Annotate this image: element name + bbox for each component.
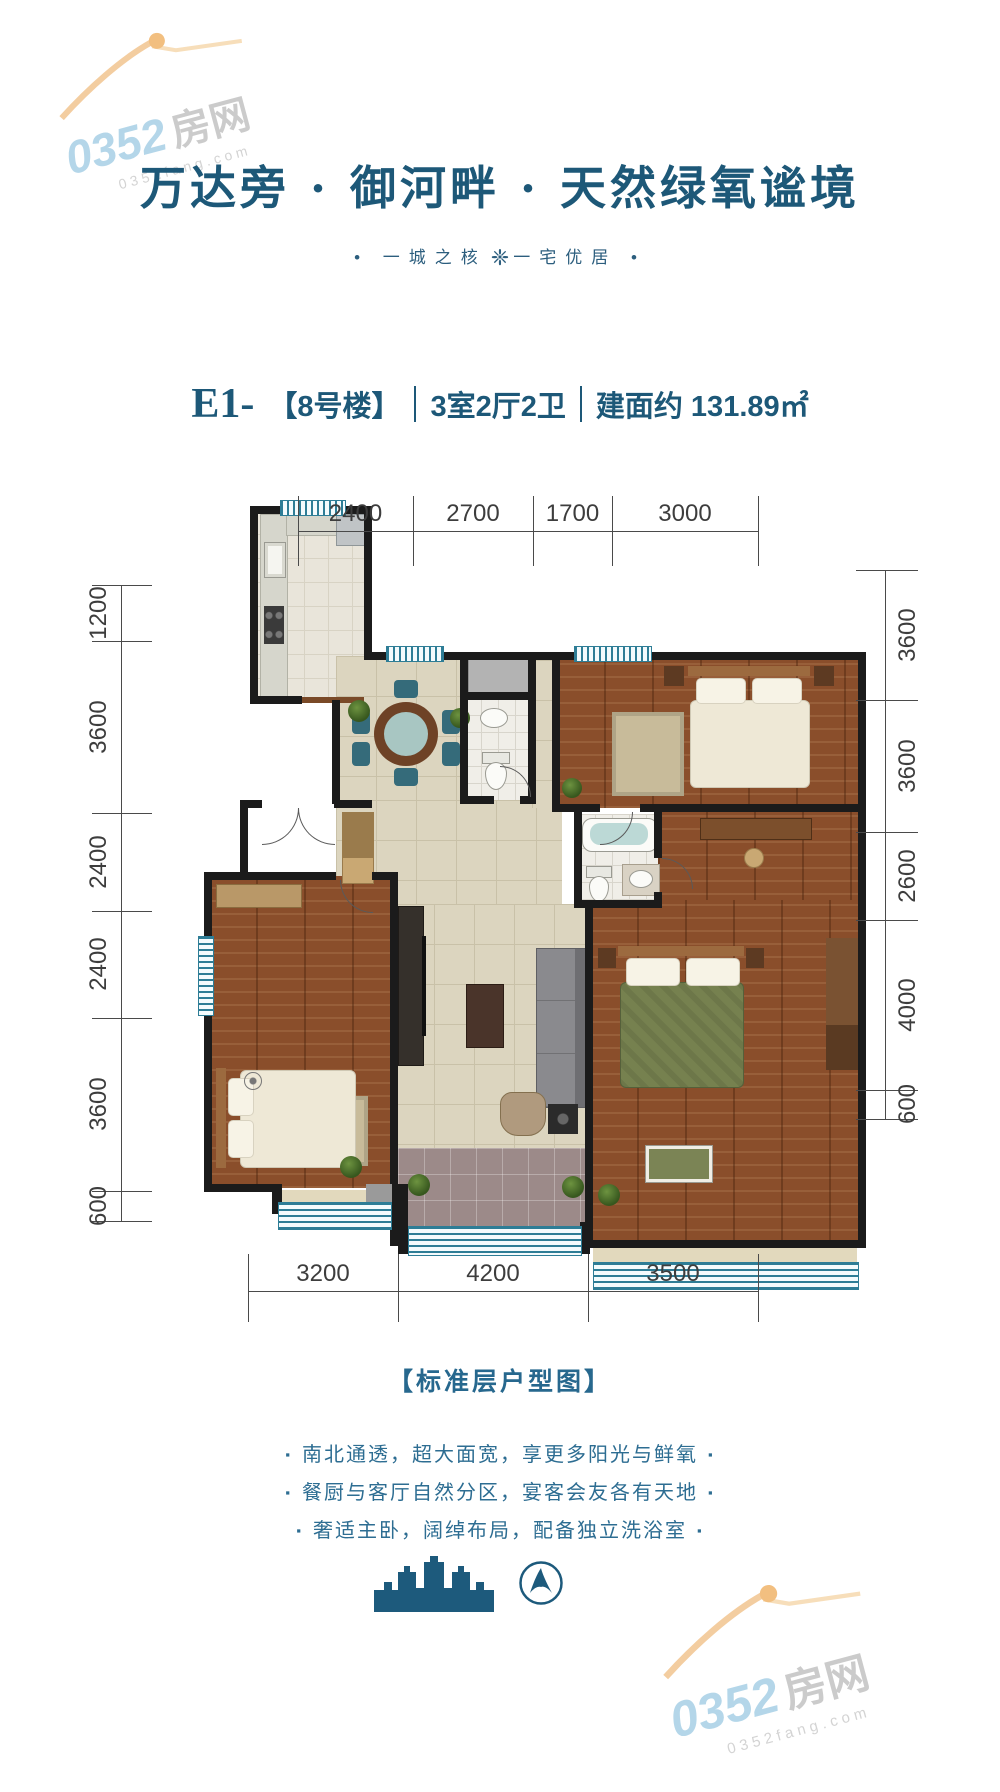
nightstand xyxy=(814,666,834,686)
plan-type-label: 【标准层户型图】 xyxy=(0,1362,1000,1398)
nightstand xyxy=(598,948,616,968)
plant xyxy=(348,700,370,722)
master-headboard xyxy=(618,946,744,956)
dim-label-top: 1700 xyxy=(533,500,612,528)
unit-info: E1- 【8号楼】 3室2厅2卫 建面约 131.89㎡ xyxy=(0,380,1000,428)
dim-tick xyxy=(856,700,918,701)
wall xyxy=(640,804,866,812)
tv-screen xyxy=(422,936,426,1036)
pillow xyxy=(626,958,680,986)
dim-tick xyxy=(758,1254,759,1322)
stool xyxy=(744,848,764,868)
dim-label-right: 2600 xyxy=(894,834,918,918)
wall xyxy=(528,660,536,804)
pillow xyxy=(228,1120,254,1158)
dim-label-left: 2400 xyxy=(85,820,109,904)
dining-window xyxy=(386,646,444,662)
selling-point: ▪南北通透，超大面宽，享更多阳光与鲜氧▪ xyxy=(0,1436,1000,1474)
bullet-marker: ▪ xyxy=(275,1447,302,1462)
wall xyxy=(364,506,372,660)
dim-label-right: 3600 xyxy=(894,593,918,677)
dim-tick xyxy=(856,570,918,571)
bedroom3-bay-window xyxy=(278,1202,392,1230)
selling-point-text: 南北通透，超大面宽，享更多阳光与鲜氧 xyxy=(302,1444,698,1466)
wall xyxy=(460,660,468,804)
selling-point-text: 奢适主卧，阔绰布局，配备独立洗浴室 xyxy=(313,1520,687,1542)
unit-building: 【8号楼】 xyxy=(268,383,400,425)
entry-niche xyxy=(468,658,530,696)
selling-point-text: 餐厨与客厅自然分区，宴客会友各有天地 xyxy=(302,1482,698,1504)
wall xyxy=(585,1240,866,1248)
entry-door-arc xyxy=(262,808,299,845)
dim-label-bottom: 3200 xyxy=(248,1260,398,1288)
divider xyxy=(580,386,582,422)
divider xyxy=(414,386,416,422)
page-title: 万达旁 · 御河畔 · 天然绿氧谧境 xyxy=(0,152,1000,218)
dim-tick xyxy=(92,1018,152,1019)
unit-code: E1- xyxy=(191,380,254,428)
wall xyxy=(520,796,536,804)
dining-chair xyxy=(394,680,418,698)
kitchen-sink xyxy=(264,542,286,578)
selling-points: ▪南北通透，超大面宽，享更多阳光与鲜氧▪ ▪餐厨与客厅自然分区，宴客会友各有天地… xyxy=(0,1436,1000,1550)
plant xyxy=(408,1174,430,1196)
pillow xyxy=(752,678,802,704)
snowflake-ornament-icon: ❈ xyxy=(487,245,513,270)
dim-label-left: 1200 xyxy=(85,571,109,655)
wall xyxy=(332,700,340,804)
subtitle-dot-left: • xyxy=(354,248,369,267)
pillow xyxy=(686,958,740,986)
wall xyxy=(460,796,494,804)
wall xyxy=(585,908,593,1248)
dim-line-bottom xyxy=(248,1291,758,1292)
bedroom2-window xyxy=(574,646,652,662)
dim-tick xyxy=(856,832,918,833)
subtitle-left-text: 一城之核 xyxy=(383,248,487,267)
bedroom3-headboard xyxy=(216,1068,226,1168)
dim-tick xyxy=(92,813,152,814)
coffee-table xyxy=(466,984,504,1048)
bedroom3-side-window xyxy=(198,936,214,1016)
bedroom2-bed xyxy=(690,700,810,788)
dining-chair xyxy=(442,742,460,766)
wall xyxy=(552,804,600,812)
stove xyxy=(264,606,284,644)
wall xyxy=(250,506,258,704)
dining-chair xyxy=(394,768,418,786)
dim-label-right: 600 xyxy=(894,1062,918,1146)
tv-console xyxy=(398,906,424,1066)
wall xyxy=(574,812,582,908)
master-bath-sink xyxy=(629,870,653,888)
wall xyxy=(204,872,212,1192)
dining-chair xyxy=(352,742,370,766)
dim-tick xyxy=(856,920,918,921)
dining-table-glass xyxy=(384,712,428,756)
dim-label-right: 3600 xyxy=(894,724,918,808)
wall xyxy=(252,696,302,704)
bedroom2-rug xyxy=(612,712,684,796)
wall xyxy=(204,872,336,880)
master-wardrobe xyxy=(826,938,858,1070)
subtitle-dot-right: • xyxy=(631,248,646,267)
unit-area: 建面约 131.89㎡ xyxy=(596,383,809,425)
wall xyxy=(204,1184,282,1192)
dim-line-top xyxy=(298,531,758,532)
flyer-page: 0352房网 0352fang.com 万达旁 · 御河畔 · 天然绿氧谧境 •… xyxy=(0,0,1000,1792)
dim-label-top: 2400 xyxy=(298,500,413,528)
subtitle-right-text: 一宅优居 xyxy=(513,248,617,267)
dim-label-bottom: 3500 xyxy=(588,1260,758,1288)
dim-line-left xyxy=(121,585,122,1221)
wall xyxy=(654,812,662,858)
master-bench xyxy=(646,1146,712,1182)
unit-layout: 3室2厅2卫 xyxy=(430,383,565,425)
plant xyxy=(598,1184,620,1206)
nightstand xyxy=(664,666,684,686)
wall xyxy=(552,660,560,812)
dim-label-top: 2700 xyxy=(413,500,533,528)
balcony-window xyxy=(408,1226,582,1256)
hall-cabinet xyxy=(342,812,374,884)
side-table xyxy=(548,1104,578,1134)
ceiling-fan-symbol xyxy=(244,1072,262,1090)
bullet-marker: ▪ xyxy=(698,1485,725,1500)
dim-label-right: 4000 xyxy=(894,963,918,1047)
dim-label-bottom: 4200 xyxy=(398,1260,588,1288)
dim-tick xyxy=(92,911,152,912)
master-bed xyxy=(620,982,744,1088)
wall xyxy=(858,652,866,1248)
bullet-marker: ▪ xyxy=(698,1447,725,1462)
dim-label-left: 2400 xyxy=(85,922,109,1006)
wall xyxy=(574,900,662,908)
selling-point: ▪奢适主卧，阔绰布局，配备独立洗浴室▪ xyxy=(0,1512,1000,1550)
nightstand xyxy=(746,948,764,968)
wall xyxy=(240,808,248,876)
page-subtitle: • 一城之核❈一宅优居 • xyxy=(0,243,1000,271)
bullet-marker: ▪ xyxy=(275,1485,302,1500)
wall xyxy=(390,872,398,1192)
dim-label-left: 600 xyxy=(85,1164,109,1248)
dim-line-right xyxy=(885,570,886,1119)
watermark-bottom-right: 0352房网 0352fang.com xyxy=(643,1560,903,1770)
selling-point: ▪餐厨与客厅自然分区，宴客会友各有天地▪ xyxy=(0,1474,1000,1512)
building-silhouette-icon xyxy=(372,1554,496,1614)
entry-door-arc xyxy=(298,808,335,845)
master-dresser xyxy=(700,818,812,840)
bedroom3-dresser xyxy=(216,884,302,908)
developer-logo-icon xyxy=(518,1560,564,1606)
dim-label-left: 3600 xyxy=(85,685,109,769)
plant xyxy=(340,1156,362,1178)
wall xyxy=(398,1222,408,1254)
dim-tick xyxy=(758,496,759,566)
dim-label-top: 3000 xyxy=(612,500,758,528)
bullet-marker: ▪ xyxy=(687,1523,714,1538)
pillow xyxy=(696,678,746,704)
plant xyxy=(562,778,582,798)
sofa xyxy=(536,948,588,1108)
armchair xyxy=(500,1092,546,1136)
guest-bath-sink xyxy=(480,708,508,728)
wall xyxy=(460,692,536,700)
plant xyxy=(562,1176,584,1198)
bullet-marker: ▪ xyxy=(286,1523,313,1538)
bedroom2-headboard xyxy=(688,666,810,676)
wall xyxy=(240,800,262,808)
dim-label-left: 3600 xyxy=(85,1062,109,1146)
